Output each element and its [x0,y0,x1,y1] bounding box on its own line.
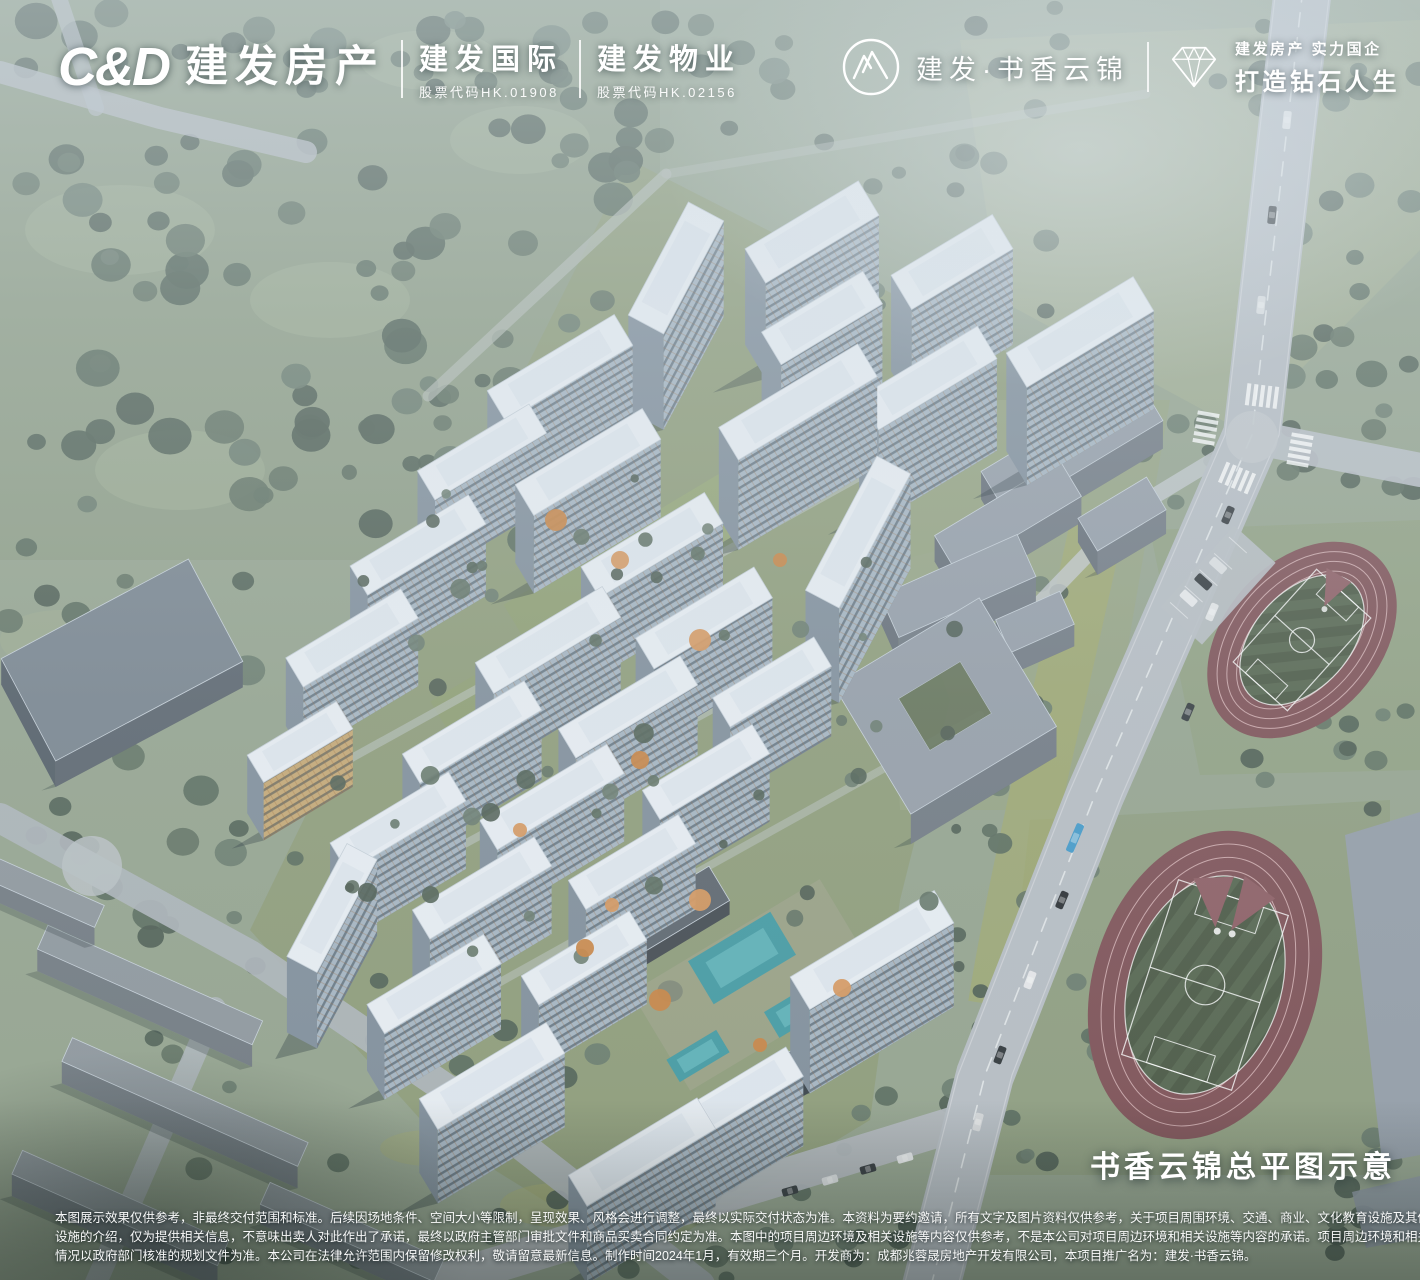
header-divider [579,40,581,98]
master-plan-poster: C&D 建发房产 建发国际 股票代码HK.01908 建发物业 股票代码HK.0… [0,0,1420,1280]
division-property-name: 建发物业 [597,42,741,78]
header-divider [1147,42,1149,92]
header-project: 建发·书香云锦 建发房产 实力国企 打造钻石人生 [840,36,1400,98]
header-divider [401,40,403,98]
division-property-stock-code: 股票代码HK.02156 [597,82,741,101]
disclaimer-line-1: 本图展示效果仅供参考，非最终交付范围和标准。后续因场地条件、空间大小等限制，呈现… [55,1209,1370,1228]
project-slogan: 建发房产 实力国企 打造钻石人生 [1235,38,1400,97]
division-intl-name: 建发国际 [419,42,563,78]
project-name: 建发·书香云锦 [916,48,1129,87]
division-intl-stock-code: 股票代码HK.01908 [419,82,563,101]
division-property: 建发物业 股票代码HK.02156 [597,42,741,101]
slogan-small: 建发房产 实力国企 [1235,38,1400,59]
division-intl: 建发国际 股票代码HK.01908 [419,42,563,101]
slogan-large: 打造钻石人生 [1235,62,1400,97]
cnd-logo: C&D [58,38,169,96]
disclaimer-line-2: 设施的介绍，仅为提供相关信息，不意味出卖人对此作出了承诺，最终以政府主管部门审批… [55,1228,1370,1247]
mountain-circle-logo-icon [840,36,902,98]
brand-company-name: 建发房产 [185,38,385,96]
disclaimer-text: 本图展示效果仅供参考，非最终交付范围和标准。后续因场地条件、空间大小等限制，呈现… [55,1209,1370,1266]
master-plan-rendering [0,0,1420,1280]
diamond-icon [1167,40,1221,94]
atmosphere-haze-layer [0,0,1420,1280]
plan-caption: 书香云锦总平图示意 [1090,1142,1396,1186]
disclaimer-line-3: 情况以政府部门核准的规划文件为准。本公司在法律允许范围内保留修改权利，敬请留意最… [55,1247,1370,1266]
header-brand: C&D 建发房产 建发国际 股票代码HK.01908 建发物业 股票代码HK.0… [58,38,741,101]
